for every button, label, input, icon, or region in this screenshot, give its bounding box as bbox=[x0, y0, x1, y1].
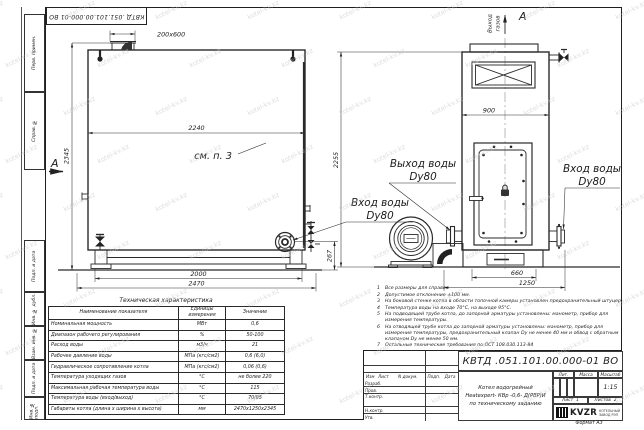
see-note-callout: см. п. 3 bbox=[194, 143, 266, 162]
boiler-body-front bbox=[88, 50, 305, 250]
param-value: не более 220 bbox=[226, 372, 285, 383]
company-cell: KVZR КОТЕЛЬНЫЙ ЗАВОД РЭП bbox=[553, 404, 623, 421]
note-line: 5На подводящей трубе котла, до запорной … bbox=[377, 312, 621, 324]
company-logo-text: KVZR bbox=[570, 408, 597, 418]
note-number: 5 bbox=[377, 312, 385, 324]
param-value: 21 bbox=[226, 341, 285, 352]
row-utv: Утв. bbox=[364, 414, 390, 421]
dim-2470-text: 2470 bbox=[188, 280, 204, 288]
product-name-line2: Heatexpert- КВр -0,6- Д(РВР)И bbox=[465, 392, 545, 400]
param-name: Диапазон рабочего регулирования bbox=[49, 330, 179, 341]
blower-fan bbox=[389, 217, 464, 268]
water-inlet-right-line1: Вход воды bbox=[563, 163, 621, 175]
param-name: Температура воды (вход/выход) bbox=[49, 394, 179, 405]
note-number: 2 bbox=[377, 293, 385, 299]
param-name: Номинальная мощность bbox=[49, 320, 179, 331]
param-unit: м3/ч bbox=[179, 341, 226, 352]
side-view: Выход газов А bbox=[332, 10, 620, 291]
table-row: Рабочее давление водыМПа (кгс/см2)0,6 (6… bbox=[49, 351, 285, 362]
table-row: Гидравлическое сопротивление котлаМПа (к… bbox=[49, 362, 285, 373]
tech-col-units: Единицы измерения bbox=[179, 307, 226, 320]
param-unit: МПа (кгс/см2) bbox=[179, 351, 226, 362]
table-row: Диапазон рабочего регулирования%50-100 bbox=[49, 330, 285, 341]
tech-col-name: Наименование показателя bbox=[49, 307, 179, 320]
table-row: Температура уходящих газов°Сне более 220 bbox=[49, 372, 285, 383]
param-value: 70/95 bbox=[226, 394, 285, 405]
tech-col-value: Значение bbox=[226, 307, 285, 320]
param-name: Гидравлическое сопротивление котла bbox=[49, 362, 179, 373]
note-text: Остальные технические требования по ОСТ … bbox=[385, 343, 621, 349]
dim-2000-text: 2000 bbox=[190, 270, 206, 278]
note-line: 2Допустимое отклонение ±100 мм. bbox=[377, 293, 621, 299]
water-outlet-label-line2: Dy80 bbox=[409, 171, 437, 183]
top-safety-valve-icon bbox=[549, 50, 569, 63]
note-text: На отводящей трубе котла до запорной арм… bbox=[385, 325, 621, 343]
side-base bbox=[463, 250, 543, 267]
lit-header: Лит. bbox=[553, 371, 574, 378]
dim-900-text: 900 bbox=[483, 106, 495, 114]
scale-header: Масштаб bbox=[598, 371, 623, 378]
table-row: Номинальная мощностьМВт0,6 bbox=[49, 320, 285, 331]
water-outlet-label: Выход воды Dy80 bbox=[389, 158, 456, 230]
param-name: Расход воды bbox=[49, 341, 179, 352]
param-value: 115 bbox=[226, 383, 285, 394]
col-izm: Изм bbox=[364, 373, 377, 380]
front-base bbox=[58, 250, 322, 270]
param-unit: °С bbox=[179, 394, 226, 405]
water-inlet-left-line2: Dy80 bbox=[366, 210, 394, 222]
param-name: Температура уходящих газов bbox=[49, 372, 179, 383]
sheets-cell: Листов 2 bbox=[588, 397, 623, 404]
param-name: Максимальная рабочая температура воды bbox=[49, 383, 179, 394]
right-nozzle-stub bbox=[305, 205, 310, 212]
note-line: 7Остальные технические требования по ОСТ… bbox=[377, 343, 621, 349]
dim-2345-text: 2345 bbox=[63, 148, 71, 164]
sheets-value: 2 bbox=[614, 398, 617, 403]
param-value: 50-100 bbox=[226, 330, 285, 341]
note-number: 7 bbox=[377, 343, 385, 349]
water-inlet-flange-front bbox=[276, 233, 295, 252]
param-value: 0,06 (0,6) bbox=[226, 362, 285, 373]
gas-outlet-arrow: Выход газов bbox=[488, 14, 506, 34]
note-line: 6На отводящей трубе котла до запорной ар… bbox=[377, 325, 621, 343]
note-number: 1 bbox=[377, 286, 385, 292]
furnace-door bbox=[470, 143, 533, 245]
param-value: 2470х1250х2345 bbox=[226, 404, 285, 415]
dim-2255-text: 2255 bbox=[332, 152, 340, 168]
water-inlet-right-line2: Dy80 bbox=[578, 176, 606, 188]
dim-stub-text: 200x600 bbox=[157, 31, 185, 39]
side-valve-stack-icon bbox=[305, 221, 320, 252]
mass-header: Масса bbox=[574, 371, 598, 378]
product-name-line1: Котел водогрейный bbox=[478, 384, 532, 392]
section-a-top-text: А bbox=[518, 10, 527, 23]
section-arrow-A-left: А bbox=[49, 157, 63, 172]
table-row: Расход водым3/ч21 bbox=[49, 341, 285, 352]
note-number: 4 bbox=[377, 306, 385, 312]
note-text: На подводящей трубе котла, до запорной а… bbox=[385, 312, 621, 324]
gas-outlet-text-1: Выход bbox=[488, 14, 494, 33]
water-inlet-label-right: Вход воды Dy80 bbox=[563, 163, 621, 229]
water-outlet-label-line1: Выход воды bbox=[390, 158, 456, 170]
row-empty bbox=[364, 400, 390, 406]
left-nozzle-stub bbox=[82, 193, 88, 201]
drawing-sheet: { "meta": { "stamp_top": "КВТД .051.101.… bbox=[0, 0, 644, 430]
note-text: Допустимое отклонение ±100 мм. bbox=[385, 293, 621, 299]
col-doc: N докум. bbox=[390, 373, 425, 380]
chimney-stub-front bbox=[110, 41, 136, 50]
gas-outlet-collar bbox=[470, 44, 538, 52]
table-row: Температура воды (вход/выход)°С70/95 bbox=[49, 394, 285, 405]
param-unit: °С bbox=[179, 372, 226, 383]
document-designation: КВТД .051.101.00.000-01 ВО bbox=[458, 351, 623, 371]
note-number: 6 bbox=[377, 325, 385, 343]
note-text: Температура воды на входе 70°С, на выход… bbox=[385, 306, 621, 312]
title-block: Изм Лист N докум. Подп. Дата Разраб. Про… bbox=[363, 350, 622, 420]
sheets-label: Листов bbox=[594, 398, 610, 403]
tech-table: Наименование показателя Единицы измерени… bbox=[48, 306, 285, 415]
row-prov: Пров. bbox=[364, 387, 390, 393]
lifting-lug-left-icon bbox=[97, 50, 102, 62]
row-nkontr: Н.контр. bbox=[364, 407, 390, 413]
scale-value: 1:15 bbox=[598, 378, 623, 397]
param-name: Рабочее давление воды bbox=[49, 351, 179, 362]
note-text: На боковой стенке котла в области топочн… bbox=[385, 299, 621, 305]
technical-notes: 1Все размеры для справок 2Допустимое отк… bbox=[377, 286, 621, 350]
param-unit: мм bbox=[179, 404, 226, 415]
row-tkontr: Т.контр. bbox=[364, 394, 390, 400]
drain-valve-icon bbox=[95, 235, 105, 251]
param-unit: МВт bbox=[179, 320, 226, 331]
lit-cell-1 bbox=[553, 378, 560, 397]
note-number: 3 bbox=[377, 299, 385, 305]
lit-cell-3 bbox=[567, 378, 574, 397]
row-razrab: Разраб. bbox=[364, 380, 390, 386]
param-unit: °С bbox=[179, 383, 226, 394]
leader-labels: Выход воды Dy80 Вход воды Dy80 Вход воды… bbox=[293, 158, 621, 240]
title-block-signatures: Изм Лист N докум. Подп. Дата Разраб. Про… bbox=[364, 351, 458, 421]
col-list: Лист bbox=[377, 373, 390, 380]
tech-table-title: Техническая характеристика bbox=[48, 297, 284, 304]
table-row: Максимальная рабочая температура воды°С1… bbox=[49, 383, 285, 394]
sheet-label: Лист bbox=[562, 398, 573, 403]
dim-2240-text: 2240 bbox=[188, 124, 204, 132]
note-line: 3На боковой стенке котла в области топоч… bbox=[377, 299, 621, 305]
section-a-left-text: А bbox=[50, 157, 59, 170]
product-name: Котел водогрейный Heatexpert- КВр -0,6- … bbox=[458, 371, 553, 421]
company-logo-icon bbox=[556, 407, 568, 418]
company-name: КОТЕЛЬНЫЙ ЗАВОД РЭП bbox=[599, 409, 620, 417]
product-name-line3: по техническому заданию bbox=[469, 400, 541, 408]
param-unit: МПа (кгс/см2) bbox=[179, 362, 226, 373]
param-unit: % bbox=[179, 330, 226, 341]
gas-outlet-text-2: газов bbox=[496, 15, 502, 31]
param-name: Габариты котла (длина х ширина х высота) bbox=[49, 404, 179, 415]
company-name-line2: ЗАВОД РЭП bbox=[599, 413, 620, 417]
param-value: 0,6 (6,0) bbox=[226, 351, 285, 362]
water-inlet-flange-side bbox=[549, 224, 565, 249]
sheet-cell: Лист 1 bbox=[553, 397, 588, 404]
note-text: Все размеры для справок bbox=[385, 286, 621, 292]
dim-267-text: 267 bbox=[326, 250, 334, 262]
explosion-hatch-window bbox=[472, 62, 535, 88]
param-value: 0,6 bbox=[226, 320, 285, 331]
col-podp: Подп. bbox=[426, 373, 442, 380]
company-name-line1: КОТЕЛЬНЫЙ bbox=[599, 409, 620, 413]
note-line: 1Все размеры для справок bbox=[377, 286, 621, 292]
note-line: 4Температура воды на входе 70°С, на выхо… bbox=[377, 306, 621, 312]
col-data: Дата bbox=[442, 373, 458, 380]
lifting-lug-right-icon bbox=[290, 50, 295, 62]
fan-damper bbox=[437, 249, 452, 264]
water-inlet-left-line1: Вход воды bbox=[351, 197, 409, 209]
tech-table-header-row: Наименование показателя Единицы измерени… bbox=[49, 307, 285, 320]
table-row: Габариты котла (длина х ширина х высота)… bbox=[49, 404, 285, 415]
lit-cell-2 bbox=[560, 378, 567, 397]
tech-characteristics: Техническая характеристика Наименование … bbox=[48, 297, 284, 415]
see-note-text: см. п. 3 bbox=[194, 151, 232, 162]
dim-660-text: 660 bbox=[511, 269, 523, 277]
boiler-body-side bbox=[462, 52, 549, 250]
front-view: 200x600 2240 2345 2000 2470 267 bbox=[49, 31, 338, 292]
mass-cell bbox=[574, 378, 598, 397]
door-handle bbox=[470, 197, 484, 201]
sheet-value: 1 bbox=[576, 398, 579, 403]
format-label: Формат А3 bbox=[556, 421, 622, 426]
